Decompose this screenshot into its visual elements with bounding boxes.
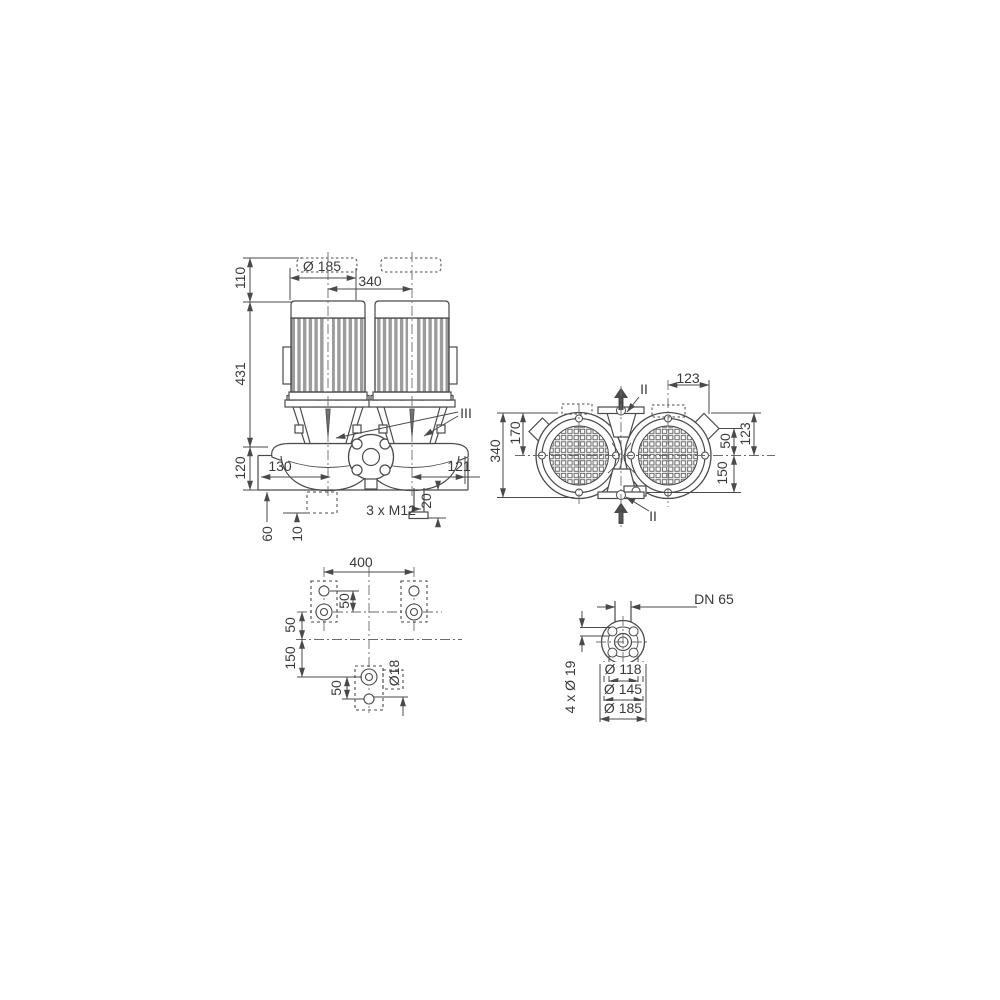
dim-stub-length-label: 20 [419, 493, 433, 509]
dim-raised-face-label: Ø 145 [602, 682, 644, 696]
dim-center-distance-label: 340 [358, 274, 381, 288]
foundation-pad-dashed [307, 492, 337, 513]
dim-outer-diameter-label: Ø 185 [602, 701, 644, 715]
section-label-ii-bottom: II [649, 509, 657, 523]
dim-flange-offset-side-label: 123 [738, 422, 752, 445]
dim-hole-offset-lower-label: 50 [329, 680, 343, 696]
dim-hole-offset-upper-label: 50 [337, 593, 351, 609]
dim-foundation-depth-label: 60 [260, 526, 274, 542]
pump-dimensional-drawing: 110 431 120 Ø 185 340 130 121 60 10 20 3… [0, 0, 1000, 1000]
dim-left-offset-label: 130 [268, 459, 291, 473]
dim-nominal-diameter-label: DN 65 [694, 592, 734, 606]
dim-total-depth-label: 340 [488, 439, 502, 462]
front-elevation-view [243, 252, 480, 524]
dim-bolt-holes-label: 4 x Ø 19 [563, 661, 577, 714]
dim-bolt-circle-label: Ø 118 [602, 662, 643, 676]
dim-height-motor-label: 431 [233, 362, 247, 385]
section-label-iii: III [460, 406, 472, 420]
top-view [497, 380, 775, 528]
dim-height-base-label: 120 [233, 456, 247, 479]
technical-drawing-canvas [0, 0, 1000, 1000]
section-label-ii-top: II [640, 382, 648, 396]
dim-center-depth-label: 170 [508, 421, 522, 444]
dim-anchor-bolts-label: 3 x M12 [366, 503, 416, 517]
dim-motor-diameter-label: Ø 185 [303, 259, 341, 273]
dim-pad-thickness-label: 10 [290, 526, 304, 542]
dim-height-top-label: 110 [233, 267, 247, 289]
dim-hole-diameter-label: Ø18 [387, 660, 401, 686]
dim-axis-offset-label: 50 [283, 617, 297, 633]
dim-port-offset-label: 50 [718, 433, 732, 449]
dim-lower-axis-offset-label: 150 [283, 646, 297, 669]
foundation-plan-view [296, 567, 462, 716]
dim-bolt-spacing-label: 400 [349, 555, 372, 569]
dim-lower-offset-label: 150 [715, 461, 729, 484]
dim-flange-offset-top-label: 123 [676, 371, 699, 385]
dim-right-offset-label: 121 [447, 459, 470, 473]
